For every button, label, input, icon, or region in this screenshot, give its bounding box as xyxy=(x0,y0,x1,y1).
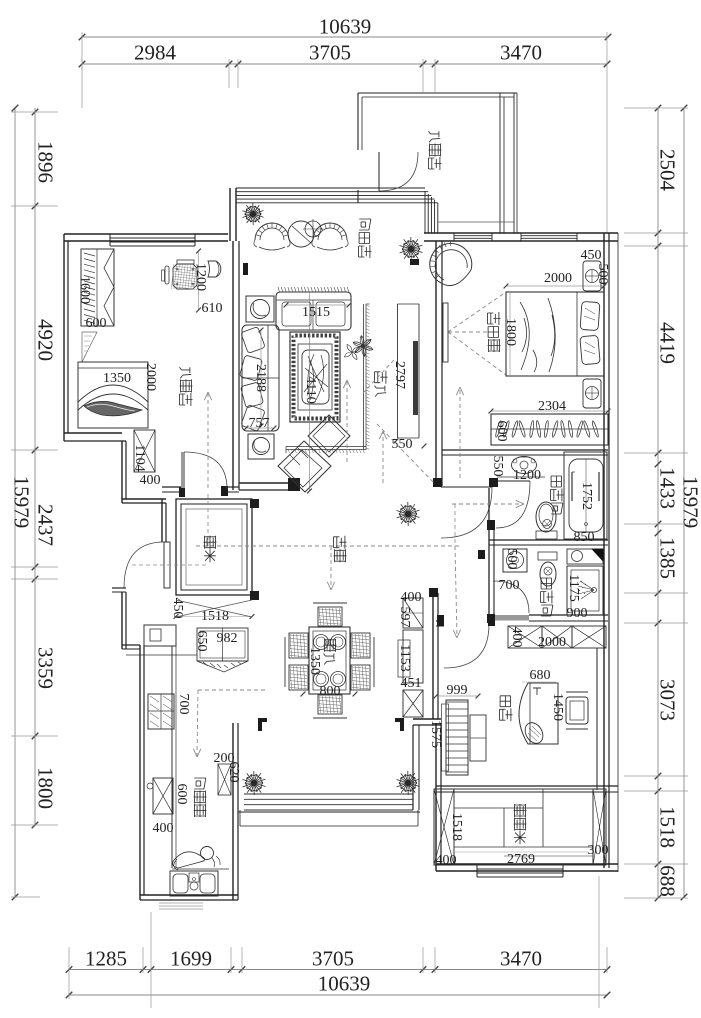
svg-text:1350: 1350 xyxy=(307,647,322,675)
svg-text:4110: 4110 xyxy=(303,376,318,403)
svg-text:999: 999 xyxy=(447,683,468,698)
svg-text:1200: 1200 xyxy=(513,468,541,483)
svg-text:2797: 2797 xyxy=(392,361,407,389)
svg-text:700: 700 xyxy=(176,694,191,715)
svg-text:400: 400 xyxy=(509,627,524,648)
svg-text:757: 757 xyxy=(249,416,270,431)
svg-text:3705: 3705 xyxy=(309,40,351,64)
svg-text:1515: 1515 xyxy=(302,305,330,320)
svg-text:1175: 1175 xyxy=(566,574,581,601)
svg-text:2000: 2000 xyxy=(544,271,572,286)
svg-text:850: 850 xyxy=(574,530,595,545)
svg-text:700: 700 xyxy=(499,578,520,593)
svg-text:15979: 15979 xyxy=(679,476,701,529)
svg-text:2188: 2188 xyxy=(253,364,268,392)
svg-text:610: 610 xyxy=(202,301,223,316)
svg-text:688: 688 xyxy=(656,865,680,897)
svg-text:3705: 3705 xyxy=(312,946,354,970)
svg-text:1518: 1518 xyxy=(449,813,464,841)
svg-text:2000: 2000 xyxy=(538,635,566,650)
svg-text:400: 400 xyxy=(401,590,422,605)
svg-text:10639: 10639 xyxy=(318,971,371,995)
svg-text:500: 500 xyxy=(504,549,519,570)
svg-text:600: 600 xyxy=(174,784,189,805)
svg-text:2000: 2000 xyxy=(143,363,158,391)
svg-text:1575: 1575 xyxy=(428,720,443,748)
svg-text:2304: 2304 xyxy=(538,399,566,414)
svg-text:1518: 1518 xyxy=(656,806,680,848)
svg-text:1450: 1450 xyxy=(550,693,565,721)
svg-text:15979: 15979 xyxy=(10,476,34,529)
svg-text:3470: 3470 xyxy=(500,40,542,64)
svg-text:1699: 1699 xyxy=(170,946,212,970)
svg-text:400: 400 xyxy=(140,473,161,488)
svg-text:2437: 2437 xyxy=(34,504,58,546)
svg-text:600: 600 xyxy=(494,421,509,442)
svg-text:1800: 1800 xyxy=(503,318,518,346)
svg-text:900: 900 xyxy=(567,606,588,621)
svg-text:3073: 3073 xyxy=(656,679,680,721)
svg-text:550: 550 xyxy=(490,456,505,477)
svg-text:982: 982 xyxy=(217,631,238,646)
svg-text:1896: 1896 xyxy=(34,141,58,183)
svg-text:451: 451 xyxy=(401,676,422,691)
svg-text:1385: 1385 xyxy=(656,537,680,579)
svg-text:4920: 4920 xyxy=(34,319,58,361)
svg-text:2984: 2984 xyxy=(134,40,177,64)
svg-text:680: 680 xyxy=(530,668,551,683)
svg-text:1153: 1153 xyxy=(397,644,412,671)
svg-text:10639: 10639 xyxy=(319,14,372,38)
svg-text:500: 500 xyxy=(595,264,610,285)
svg-text:1350: 1350 xyxy=(103,371,131,386)
svg-text:3470: 3470 xyxy=(500,946,542,970)
svg-text:1200: 1200 xyxy=(193,263,208,291)
svg-text:1600: 1600 xyxy=(77,276,92,304)
svg-text:4419: 4419 xyxy=(656,322,680,364)
svg-text:400: 400 xyxy=(153,821,174,836)
svg-text:2769: 2769 xyxy=(507,852,535,867)
svg-text:2504: 2504 xyxy=(656,149,680,192)
svg-text:597: 597 xyxy=(397,607,412,628)
svg-text:600: 600 xyxy=(86,316,107,331)
svg-text:1104: 1104 xyxy=(132,444,147,471)
svg-text:650: 650 xyxy=(194,631,209,652)
svg-text:1800: 1800 xyxy=(34,767,58,809)
svg-text:400: 400 xyxy=(436,853,457,868)
svg-text:620: 620 xyxy=(226,762,241,783)
svg-text:1752: 1752 xyxy=(579,482,594,510)
svg-text:1285: 1285 xyxy=(85,946,127,970)
svg-text:800: 800 xyxy=(320,684,341,699)
svg-text:3359: 3359 xyxy=(34,647,58,689)
svg-text:1433: 1433 xyxy=(656,467,680,509)
svg-text:300: 300 xyxy=(588,843,609,858)
